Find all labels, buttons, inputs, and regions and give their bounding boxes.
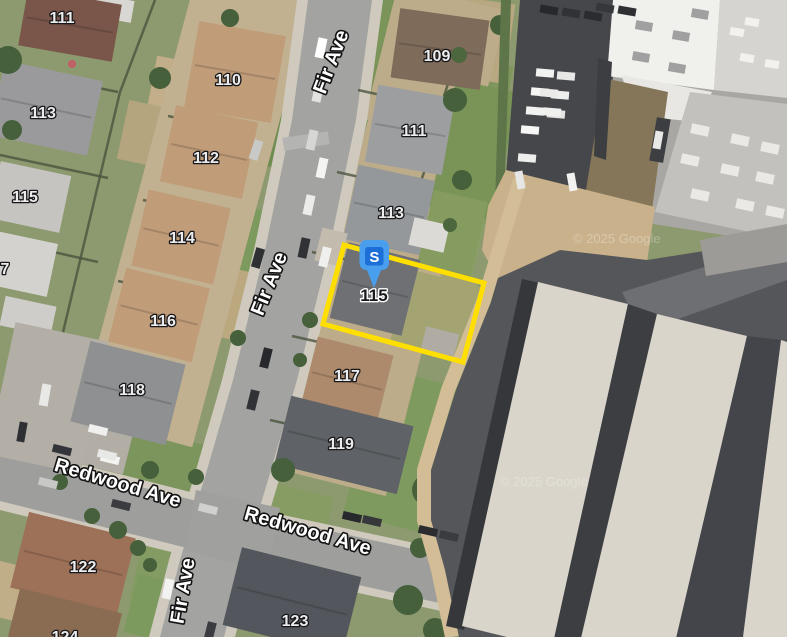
svg-text:122: 122 xyxy=(70,559,97,576)
svg-text:114: 114 xyxy=(169,230,195,247)
svg-text:118: 118 xyxy=(119,382,145,399)
svg-text:116: 116 xyxy=(150,313,176,330)
svg-text:110: 110 xyxy=(215,72,241,89)
svg-text:© 2025 Google: © 2025 Google xyxy=(500,474,588,489)
svg-text:115: 115 xyxy=(360,286,387,305)
svg-text:117: 117 xyxy=(334,368,360,385)
svg-text:111: 111 xyxy=(402,123,427,140)
svg-text:109: 109 xyxy=(424,48,451,65)
svg-text:111: 111 xyxy=(50,10,75,27)
svg-text:S: S xyxy=(369,249,379,266)
svg-text:124: 124 xyxy=(52,629,79,637)
svg-text:123: 123 xyxy=(282,613,309,630)
svg-text:113: 113 xyxy=(378,205,404,222)
svg-text:115: 115 xyxy=(12,189,38,206)
svg-text:7: 7 xyxy=(1,261,10,278)
svg-text:112: 112 xyxy=(193,150,219,167)
svg-text:© 2025 Google: © 2025 Google xyxy=(573,231,661,246)
svg-text:113: 113 xyxy=(30,105,56,122)
svg-text:119: 119 xyxy=(328,436,354,453)
